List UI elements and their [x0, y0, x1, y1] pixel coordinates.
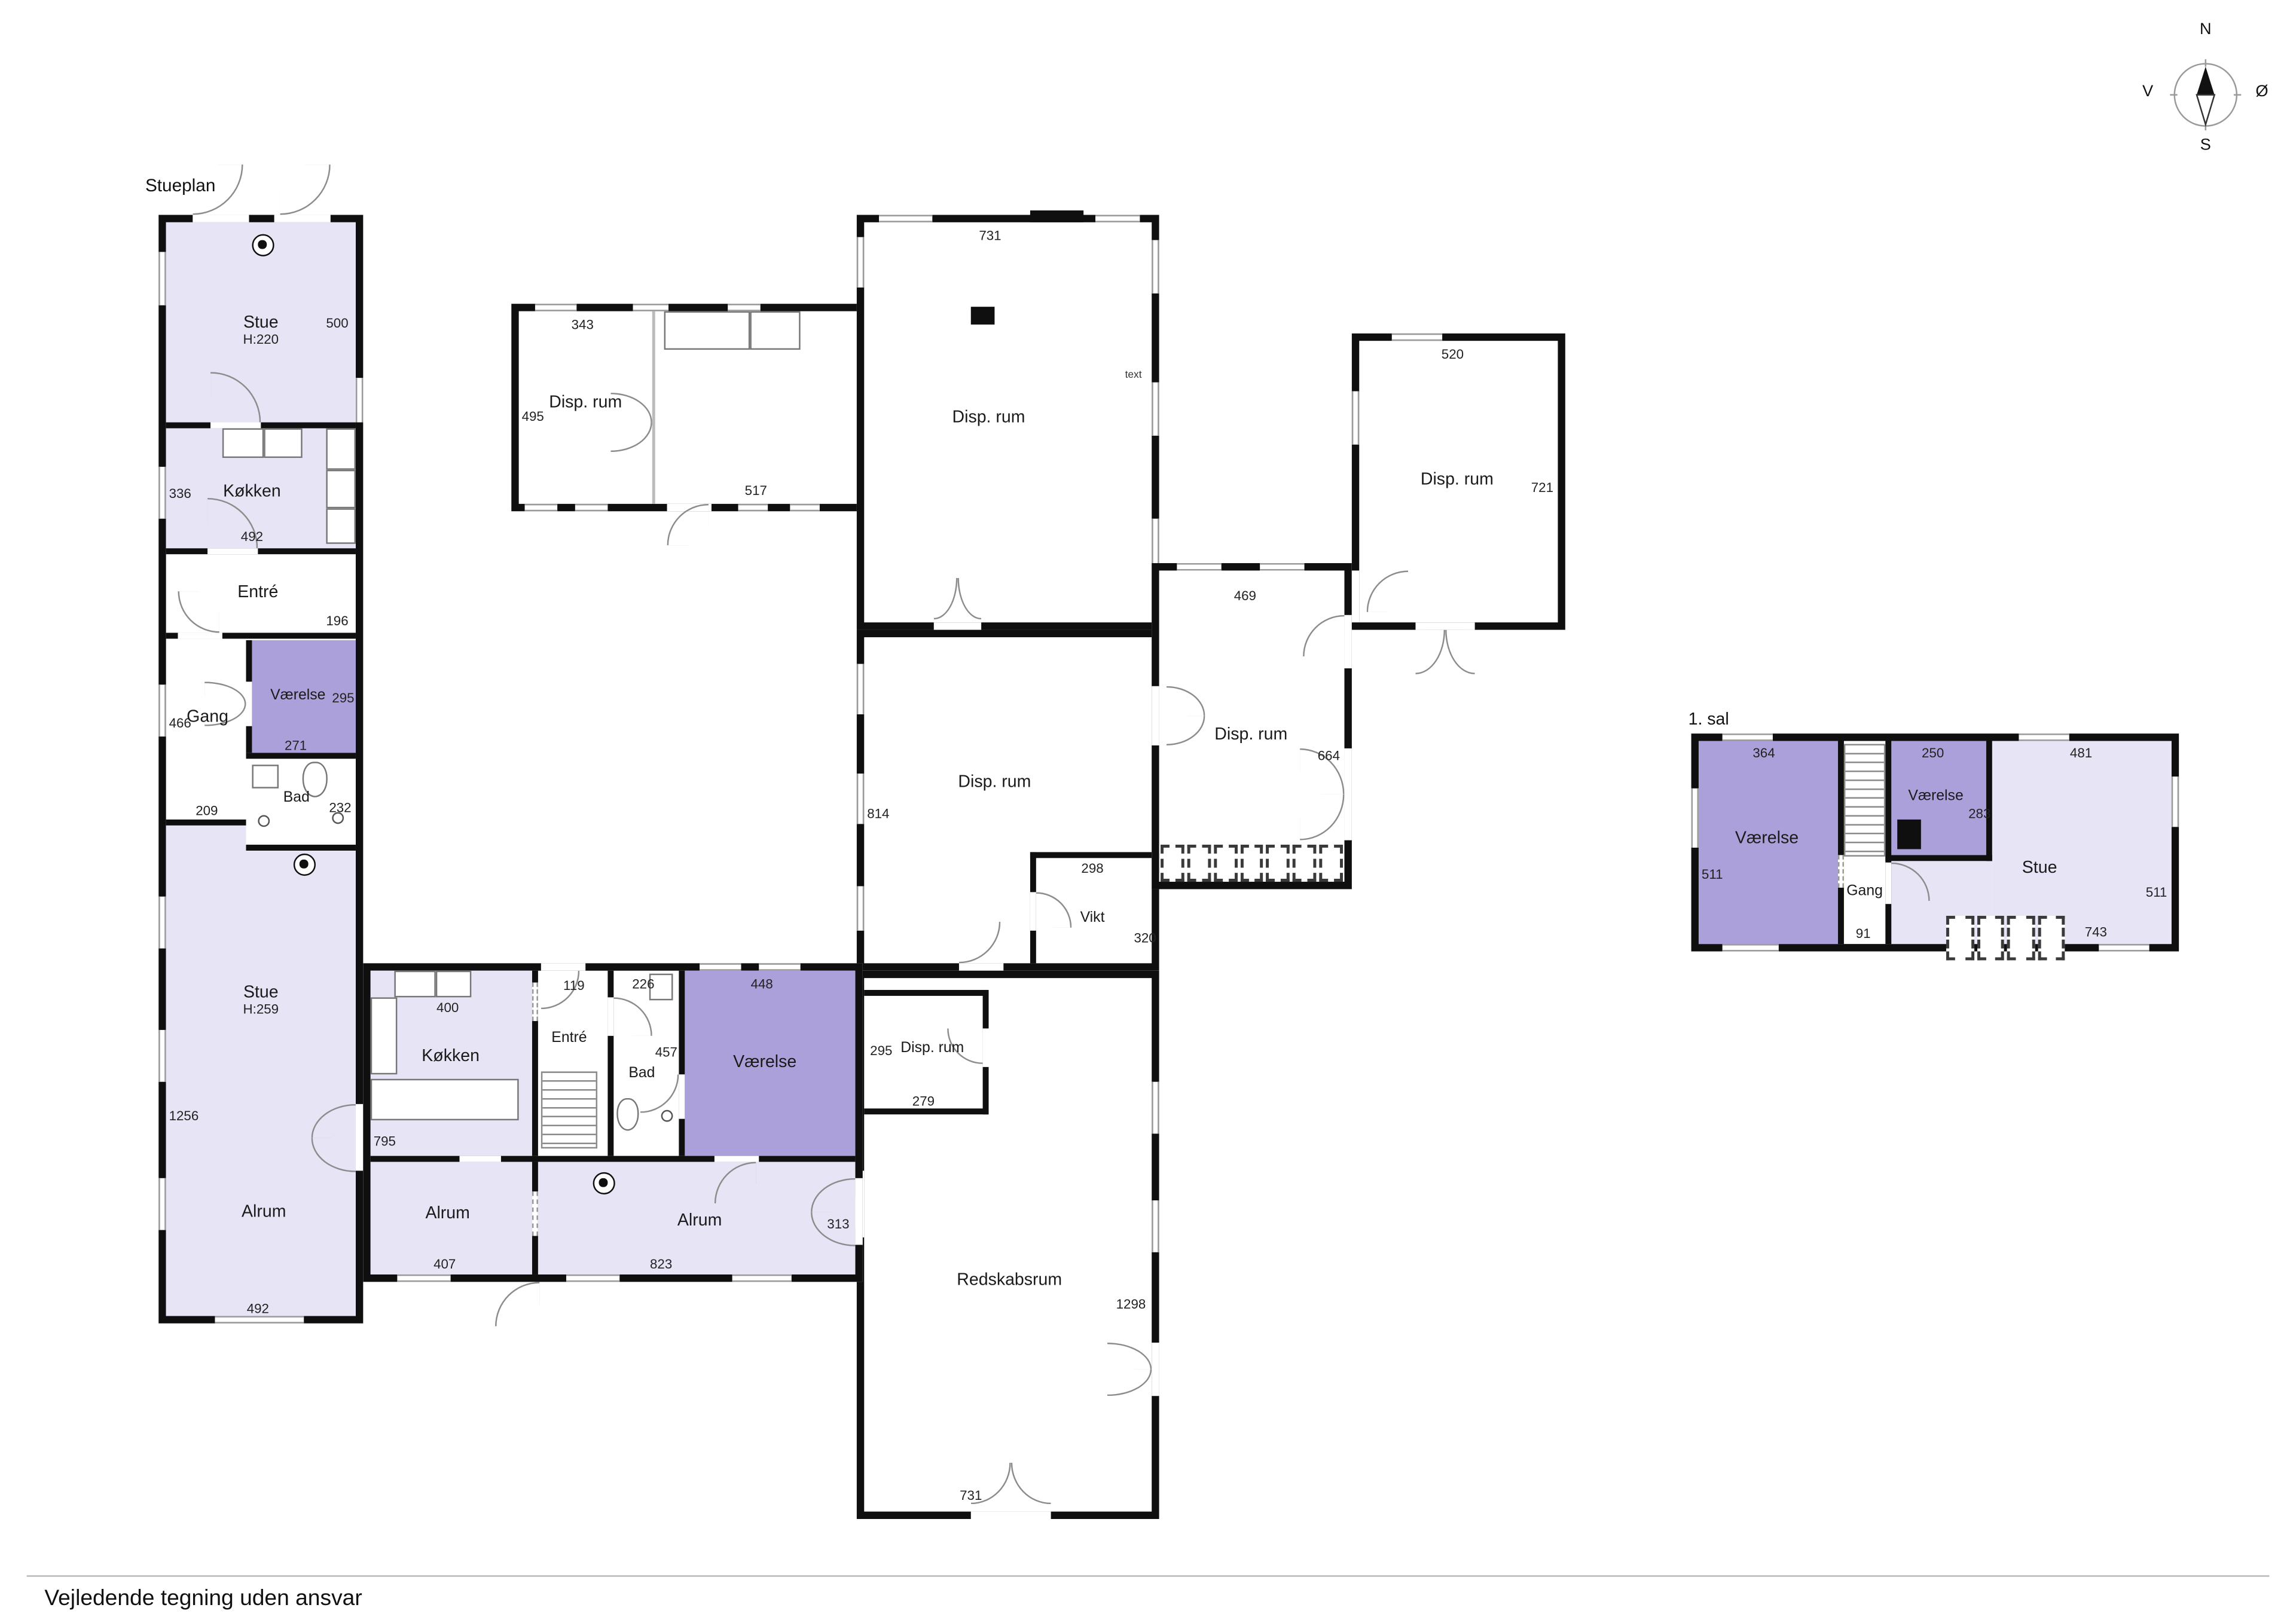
- window: [1152, 383, 1159, 436]
- door-opening: [934, 622, 981, 629]
- window: [728, 304, 761, 311]
- window: [738, 504, 768, 511]
- dim: 517: [745, 483, 767, 498]
- room-label: Alrum: [242, 1203, 286, 1221]
- building-redskabsrum: 295 Disp. rum 279 Redskabsrum 1298 731: [857, 971, 1159, 1519]
- stove-icon: [371, 997, 398, 1074]
- dim: 196: [326, 613, 348, 628]
- dim: 209: [196, 803, 218, 818]
- compass-north-label: N: [2200, 21, 2212, 39]
- chimney-icon: [1030, 210, 1083, 222]
- dim: 823: [650, 1257, 672, 1271]
- door-opening: [1344, 748, 1351, 840]
- smoke-detector-icon: [252, 234, 274, 256]
- dim: 407: [433, 1257, 456, 1271]
- wall: [864, 990, 988, 996]
- room-label: Vikt: [1080, 910, 1105, 926]
- chimney-icon: [971, 307, 995, 325]
- building-first-floor: 364 Værelse 511 Gang 91 250 Værelse 283 …: [1692, 733, 2179, 951]
- room-label: Entré: [551, 1030, 587, 1046]
- annotation: text: [1125, 371, 1142, 381]
- dim: 1298: [1116, 1297, 1146, 1312]
- window: [857, 886, 864, 930]
- door-opening: [1885, 863, 1891, 904]
- first-floor-title: 1. sal: [1689, 711, 1729, 729]
- door-opening: [459, 1156, 500, 1162]
- window: [1352, 391, 1359, 444]
- dim: 469: [1234, 588, 1256, 603]
- dim: 279: [912, 1094, 935, 1109]
- door-swing: [1107, 1370, 1152, 1396]
- dim: 320: [1134, 931, 1156, 946]
- window: [575, 504, 608, 511]
- room-label: Stue: [243, 984, 279, 1002]
- window: [790, 504, 820, 511]
- window: [356, 378, 363, 422]
- window: [158, 1178, 166, 1230]
- building-south-cluster: 400 Køkken 795 119 Entré 226 457 Bad 448…: [363, 963, 862, 1282]
- window: [158, 467, 166, 519]
- worktop: [750, 311, 800, 350]
- compass-south-label: S: [2200, 136, 2211, 154]
- dim: 343: [572, 317, 594, 332]
- kitchen-sink-icon: [394, 971, 435, 998]
- window: [158, 897, 166, 949]
- glass-partition: [652, 311, 655, 504]
- door-swing: [1107, 1343, 1152, 1370]
- door-opening: [1344, 615, 1351, 668]
- window: [1392, 334, 1442, 341]
- door-swing: [1415, 630, 1445, 674]
- wall: [679, 971, 685, 1156]
- shower-icon: [661, 1110, 673, 1122]
- dim: 283: [1968, 806, 1990, 821]
- ceiling-height: H:220: [243, 332, 279, 347]
- opening-dashed: [532, 983, 538, 1021]
- room-label: Entré: [237, 584, 278, 602]
- window: [857, 237, 864, 288]
- building-disp-mid: 814 Disp. rum 298 Vikt 320: [857, 630, 1159, 971]
- compass-west-label: V: [2142, 83, 2153, 101]
- room-label: Alrum: [677, 1212, 722, 1230]
- door-swing: [610, 423, 652, 453]
- dim: 721: [1531, 480, 1553, 495]
- door-swing: [1300, 794, 1344, 840]
- dim: 271: [285, 738, 307, 753]
- dim: 457: [655, 1045, 677, 1060]
- dim: 336: [169, 486, 191, 501]
- window: [158, 252, 166, 305]
- room-label: Værelse: [1735, 830, 1799, 848]
- dim: 466: [169, 716, 191, 730]
- dim: 795: [374, 1133, 396, 1148]
- window: [1723, 733, 1773, 741]
- window: [215, 1316, 304, 1323]
- door-opening: [246, 681, 252, 726]
- door-opening: [855, 1178, 862, 1245]
- dishwasher-icon: [436, 971, 471, 998]
- door-swing: [280, 164, 331, 215]
- wall: [1986, 741, 1992, 861]
- window: [857, 774, 864, 824]
- wardrobe-icon: [1159, 845, 1345, 882]
- door-swing: [204, 681, 246, 704]
- dim: 492: [247, 1301, 269, 1316]
- room-label: Stue: [243, 314, 279, 332]
- toilet-icon: [616, 1098, 639, 1131]
- room-label: Værelse: [270, 687, 325, 704]
- window: [535, 304, 576, 311]
- window: [2172, 777, 2179, 827]
- compass-east-label: Ø: [2255, 83, 2268, 101]
- door-opening: [971, 1512, 1051, 1519]
- dim: 313: [827, 1217, 849, 1231]
- window: [1152, 1200, 1159, 1252]
- wall: [1838, 741, 1844, 945]
- door-swing: [1167, 716, 1205, 745]
- opening-dashed: [1838, 855, 1844, 888]
- window: [1723, 944, 1779, 951]
- opening-dashed: [532, 1191, 538, 1236]
- door-swing: [1167, 686, 1205, 716]
- building-disp-e: 469 Disp. rum 664: [1152, 563, 1352, 889]
- dim: 511: [1702, 867, 1723, 882]
- washer-icon: [222, 428, 264, 458]
- room-label: Bad: [628, 1065, 655, 1081]
- door-swing: [193, 164, 243, 215]
- window: [1152, 240, 1159, 294]
- door-swing: [1367, 570, 1408, 612]
- room-label: Redskabsrum: [957, 1271, 1062, 1289]
- wall: [371, 1156, 856, 1162]
- chimney-icon: [1897, 820, 1921, 849]
- door-opening: [607, 997, 613, 1035]
- door-opening: [178, 633, 222, 639]
- door-swing: [1445, 630, 1475, 674]
- window: [158, 684, 166, 736]
- window: [2099, 944, 2149, 951]
- dim: 448: [751, 977, 773, 992]
- kitchen-island: [371, 1079, 519, 1120]
- kitchen-sink-icon: [326, 470, 356, 508]
- wall: [246, 753, 356, 759]
- smoke-detector-icon: [593, 1172, 615, 1194]
- dim: 743: [2085, 925, 2107, 940]
- window: [2019, 733, 2069, 741]
- building-disp-nw: 343 495 517 Disp. rum: [511, 304, 867, 511]
- dim: 511: [2146, 885, 2167, 900]
- window: [1095, 215, 1140, 222]
- window: [1177, 563, 1221, 570]
- stairs-icon: [1844, 744, 1885, 856]
- dim: 295: [332, 690, 354, 705]
- door-opening: [983, 1028, 989, 1066]
- dim: 226: [632, 977, 654, 992]
- dim: 250: [1922, 745, 1944, 760]
- door-swing: [1011, 1463, 1051, 1504]
- window: [525, 504, 558, 511]
- wall: [1885, 855, 1992, 861]
- room-label: Værelse: [1908, 788, 1963, 805]
- door-swing: [959, 922, 1000, 963]
- room-label: Disp. rum: [1421, 471, 1494, 489]
- room-label: Bad: [283, 790, 310, 806]
- door-swing: [495, 1282, 539, 1326]
- dim: 400: [436, 1000, 459, 1015]
- dim: 1256: [169, 1108, 199, 1123]
- divider: [27, 1575, 2270, 1576]
- room-label: Disp. rum: [900, 1040, 964, 1056]
- dim: 295: [870, 1043, 892, 1058]
- worktop: [664, 311, 750, 350]
- door-swing: [1036, 892, 1071, 927]
- window: [732, 1274, 792, 1282]
- dim: 481: [2070, 745, 2092, 760]
- wall: [166, 548, 356, 554]
- dim: 814: [867, 806, 889, 821]
- wall: [246, 845, 356, 851]
- dim: 520: [1442, 347, 1464, 362]
- window: [397, 1274, 450, 1282]
- door-opening: [1152, 686, 1159, 745]
- window: [700, 963, 741, 970]
- window: [566, 1274, 619, 1282]
- door-swing: [934, 578, 958, 619]
- sink-icon: [252, 765, 279, 788]
- window: [1260, 563, 1304, 570]
- wall: [1030, 852, 1152, 858]
- door-swing: [957, 578, 981, 619]
- stove-icon: [264, 428, 302, 458]
- window: [857, 664, 864, 714]
- window: [1152, 519, 1159, 566]
- room-label: Køkken: [422, 1048, 480, 1066]
- window: [633, 304, 668, 311]
- ceiling-height: H:259: [243, 1002, 279, 1017]
- door-swing: [1303, 615, 1344, 656]
- stairs-icon: [541, 1071, 597, 1148]
- dim: 731: [960, 1488, 982, 1503]
- dim: 91: [1856, 926, 1871, 941]
- window: [879, 215, 932, 222]
- room-label: Disp. rum: [549, 394, 622, 412]
- room-label: Værelse: [733, 1054, 796, 1072]
- room-label: Gang: [1846, 883, 1883, 899]
- smoke-detector-icon: [294, 854, 316, 876]
- window: [1152, 1082, 1159, 1134]
- compass-rose-icon: N S V Ø: [2138, 27, 2271, 160]
- wall: [166, 820, 246, 826]
- window: [759, 963, 800, 970]
- wall: [864, 1108, 988, 1114]
- room-label: Disp. rum: [952, 409, 1025, 427]
- dim: 500: [326, 316, 348, 331]
- door-swing: [613, 997, 652, 1035]
- door-opening: [959, 963, 1003, 970]
- disclaimer-text: Vejledende tegning uden ansvar: [44, 1586, 362, 1611]
- kitchen-counter: [326, 508, 356, 543]
- room-label: Køkken: [223, 483, 281, 501]
- door-opening: [1352, 570, 1359, 622]
- door-opening: [1030, 892, 1036, 930]
- dim: 364: [1752, 745, 1775, 760]
- window: [158, 1030, 166, 1082]
- dim: 664: [1318, 748, 1340, 763]
- door-opening: [210, 423, 261, 429]
- building-disp-n: 731 text Disp. rum: [857, 215, 1159, 629]
- room-label: Alrum: [425, 1205, 469, 1222]
- room-label: Disp. rum: [1214, 726, 1287, 744]
- kitchen-counter: [326, 428, 356, 469]
- dim: 495: [522, 409, 544, 424]
- room-fs-stue: [1992, 741, 2172, 945]
- dim: 731: [979, 228, 1001, 243]
- door-swing: [178, 591, 219, 632]
- dim: 119: [563, 978, 585, 993]
- door-opening: [356, 1104, 363, 1171]
- door-opening: [541, 963, 585, 970]
- door-opening: [1415, 622, 1474, 629]
- door-opening: [679, 1074, 685, 1118]
- room-label: Disp. rum: [958, 774, 1031, 791]
- room-label: Gang: [187, 708, 228, 726]
- dim: 232: [329, 800, 351, 815]
- building-west-wing: Stue H:220 500 336 Køkken 492 Entré 196 …: [158, 215, 363, 1323]
- door-opening: [1152, 1343, 1159, 1396]
- dim: 492: [241, 529, 263, 544]
- wardrobe-icon: [1944, 916, 2066, 960]
- door-opening: [207, 548, 258, 554]
- door-opening: [715, 1156, 759, 1162]
- room-label: Stue: [2022, 860, 2057, 878]
- shower-icon: [258, 815, 270, 827]
- dim: 298: [1081, 861, 1103, 876]
- wall: [1885, 741, 1891, 945]
- room-stue-alrum-sw: [166, 826, 356, 1316]
- door-opening: [193, 215, 249, 222]
- door-opening: [274, 215, 331, 222]
- building-disp-ne: 520 Disp. rum 721: [1352, 334, 1565, 630]
- window: [1692, 788, 1699, 848]
- floorplan-canvas: Stueplan: [0, 0, 2296, 1623]
